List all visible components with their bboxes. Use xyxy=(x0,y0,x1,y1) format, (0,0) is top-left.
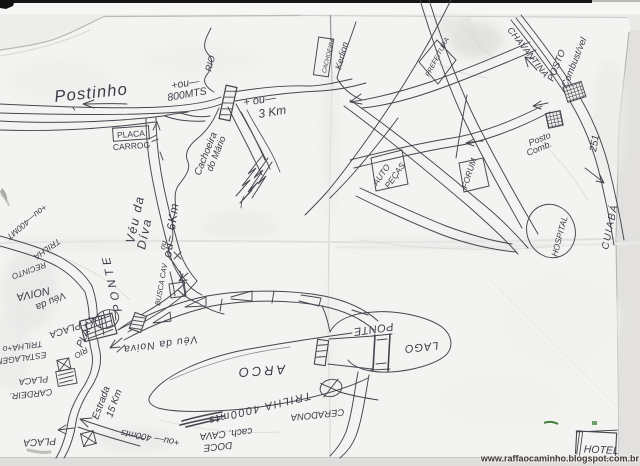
svg-text:www.raffaocaminho.blogspot.com: www.raffaocaminho.blogspot.com.br xyxy=(480,454,640,464)
svg-text:PLACA: PLACA xyxy=(23,435,57,448)
svg-text:PLACA: PLACA xyxy=(117,128,146,140)
